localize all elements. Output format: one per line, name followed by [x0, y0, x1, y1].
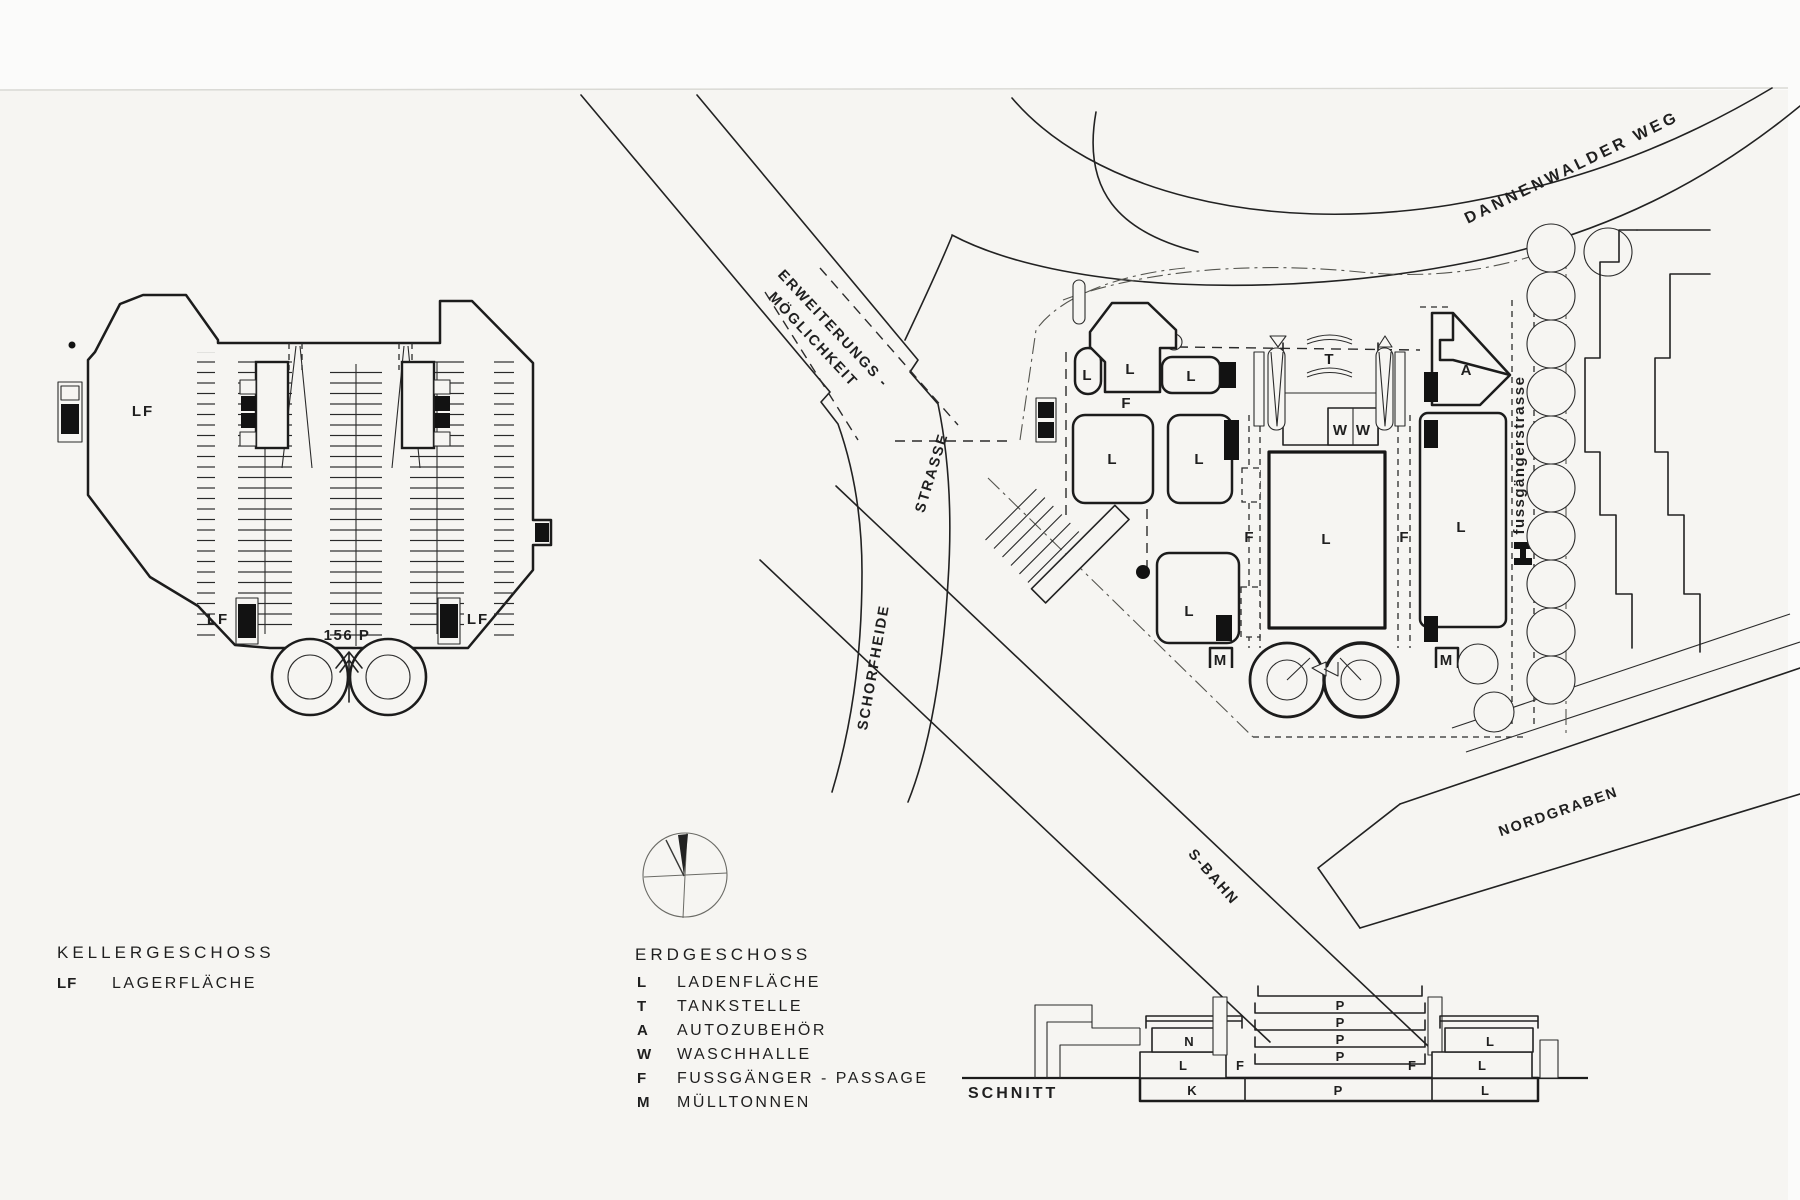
section-label: L	[1486, 1034, 1494, 1049]
entrance-black	[1216, 615, 1232, 641]
scan-right-margin	[1788, 0, 1800, 1200]
autozubehoer-label: A	[1461, 362, 1474, 379]
core-black	[535, 523, 549, 542]
core-cell	[240, 380, 256, 394]
legend-title: ERDGESCHOSS	[635, 945, 811, 964]
main-store-label: L	[1321, 531, 1332, 548]
lf-area-label: LF	[467, 611, 489, 628]
passage-dashed-box	[1242, 468, 1260, 502]
site-plan-drawing: LF LF LF 156 P	[0, 0, 1800, 1200]
section-label: P	[1336, 1032, 1345, 1047]
washhall-label: W	[1356, 422, 1372, 439]
section-label: P	[1336, 1015, 1345, 1030]
legend-label: FUSSGÄNGER - PASSAGE	[677, 1069, 929, 1087]
section-tower	[1540, 1040, 1558, 1078]
pylon	[1213, 997, 1227, 1055]
passage-label: F	[1399, 529, 1410, 546]
section-label: P	[1336, 1049, 1345, 1064]
legend-label: LAGERFLÄCHE	[112, 974, 257, 992]
legend-key: A	[637, 1022, 649, 1039]
core-black	[1038, 422, 1054, 438]
legend-key: LF	[57, 975, 77, 992]
shop-label: L	[1082, 367, 1093, 384]
parking-row	[197, 352, 215, 640]
core-black	[435, 413, 450, 428]
passage-dashed-box	[1241, 587, 1260, 637]
core-black	[241, 413, 256, 428]
lf-area-label: LF	[132, 403, 154, 420]
entrance-black	[1424, 616, 1438, 642]
entrance-black	[1424, 372, 1438, 402]
section-label: L	[1478, 1058, 1486, 1073]
legend-label: WASCHHALLE	[677, 1046, 812, 1063]
shop-label: L	[1107, 451, 1118, 468]
scanned-drawing-sheet: LF LF LF 156 P	[0, 0, 1800, 1200]
core-black	[1038, 402, 1054, 418]
core-cell	[61, 386, 79, 400]
parking-row	[494, 356, 514, 640]
scan-top-margin	[0, 0, 1800, 90]
legend-key: W	[637, 1046, 652, 1063]
section-label: P	[1334, 1083, 1343, 1098]
passage-label: F	[1244, 529, 1255, 546]
section-label: L	[1481, 1083, 1489, 1098]
section-label: F	[1236, 1058, 1244, 1073]
muell-label: M	[1214, 652, 1229, 669]
shop-label: L	[1456, 519, 1467, 536]
legend-label: TANKSTELLE	[677, 998, 803, 1015]
muell-label: M	[1440, 652, 1455, 669]
core-black	[61, 404, 79, 434]
planter	[1073, 280, 1085, 324]
core-black	[435, 396, 450, 411]
section-label: K	[1187, 1083, 1197, 1098]
shop-label: L	[1184, 603, 1195, 620]
shop-label: L	[1194, 451, 1205, 468]
spiral-ramp-inner	[366, 655, 410, 699]
stair-core	[402, 362, 434, 448]
tankstelle-label: T	[1324, 351, 1335, 368]
shop-label: L	[1186, 368, 1197, 385]
legend-key: L	[637, 974, 647, 991]
section-label: F	[1408, 1058, 1416, 1073]
fussgaengerstrasse-label: fussgängerstrasse	[1511, 376, 1528, 535]
washhall-label: W	[1333, 422, 1349, 439]
section-label: P	[1336, 998, 1345, 1013]
passage-label: F	[1121, 395, 1132, 412]
lf-area-label: LF	[207, 611, 229, 628]
section-label: L	[1179, 1058, 1187, 1073]
boundary-dot	[1136, 565, 1150, 579]
core-black	[440, 604, 458, 638]
legend-label: LADENFLÄCHE	[677, 973, 821, 991]
core-cell	[434, 432, 450, 446]
pump-kerb	[1254, 352, 1264, 426]
entrance-black	[1224, 420, 1239, 460]
survey-dot	[69, 342, 76, 349]
core-black	[241, 396, 256, 411]
legend-label: AUTOZUBEHÖR	[677, 1021, 827, 1039]
core-cell	[240, 432, 256, 446]
legend-title: KELLERGESCHOSS	[57, 943, 275, 962]
core-cell	[434, 380, 450, 394]
stair-core	[256, 362, 288, 448]
parking-capacity-label: 156 P	[324, 627, 371, 644]
legend-key: T	[637, 998, 647, 1015]
legend-key: F	[637, 1070, 647, 1087]
shop-label: L	[1125, 361, 1136, 378]
entrance-black	[1220, 362, 1236, 388]
pump-kerb	[1395, 352, 1405, 426]
legend-key: M	[637, 1094, 651, 1111]
core-black	[238, 604, 256, 638]
spiral-ramp-inner	[288, 655, 332, 699]
entrance-black	[1424, 420, 1438, 448]
legend-label: MÜLLTONNEN	[677, 1093, 811, 1111]
section-title: SCHNITT	[968, 1085, 1058, 1102]
section-label: N	[1184, 1034, 1193, 1049]
